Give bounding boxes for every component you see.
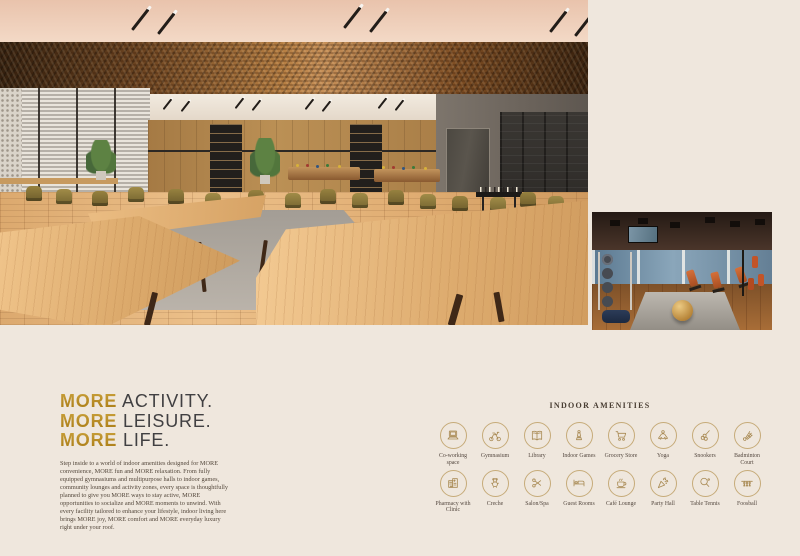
headline-line: MORE LEISURE.	[60, 412, 240, 432]
open-book-icon	[529, 428, 545, 444]
amenity-label: Guest Rooms	[563, 501, 594, 508]
amenity-circle	[650, 422, 677, 449]
amenities-row: Pharmacy with Clinic Creche Salon/Spa Gu…	[432, 470, 768, 515]
chair-shape	[452, 196, 468, 211]
chair-shape	[420, 194, 436, 209]
clinic-building-icon	[445, 475, 461, 491]
headline-rest: LIFE.	[123, 430, 170, 450]
photo-display-cabinet	[210, 124, 242, 192]
chair-shape	[168, 189, 184, 204]
chair-shape	[92, 191, 108, 206]
billiards-icon	[697, 428, 713, 444]
shopping-cart-icon	[613, 428, 629, 444]
intro-section: MORE ACTIVITY. MORE LEISURE. MORE LIFE. …	[60, 392, 240, 532]
headline-rest: LEISURE.	[123, 411, 211, 431]
foosball-icon	[739, 475, 755, 491]
headline: MORE ACTIVITY. MORE LEISURE. MORE LIFE.	[60, 392, 240, 451]
chair-shape	[320, 189, 336, 204]
amenity-co-working-space: Co-working space	[432, 422, 474, 467]
gym-weight-rack	[598, 252, 632, 310]
headline-highlight: MORE	[60, 411, 117, 431]
photo-pool-table	[288, 167, 360, 180]
headline-rest: ACTIVITY.	[122, 391, 213, 411]
amenity-circle	[482, 422, 509, 449]
photo-window-blinds	[0, 88, 150, 192]
chair-shape	[388, 190, 404, 205]
amenity-circle	[650, 470, 677, 497]
amenity-circle	[692, 470, 719, 497]
photo-wall-trim	[148, 150, 438, 152]
amenity-yoga: Yoga	[642, 422, 684, 467]
main-photo	[0, 0, 588, 325]
headline-highlight: MORE	[60, 430, 117, 450]
amenity-label: Co-working space	[433, 453, 473, 467]
gym-ceiling	[592, 212, 772, 250]
amenity-grocery-store: Grocery Store	[600, 422, 642, 467]
gym-duffel-bag	[602, 310, 630, 323]
photo-pool-table	[374, 169, 440, 182]
amenity-circle	[566, 422, 593, 449]
amenity-label: Snookers	[694, 453, 716, 460]
amenity-snookers: Snookers	[684, 422, 726, 467]
amenity-party-hall: Party Hall	[642, 470, 684, 515]
amenity-table-tennis: Table Tennis	[684, 470, 726, 515]
amenities-row: Co-working space Gymnasium Library Indoo…	[432, 422, 768, 467]
amenity-label: Creche	[487, 501, 503, 508]
amenity-indoor-games: Indoor Games	[558, 422, 600, 467]
headline-line: MORE ACTIVITY.	[60, 392, 240, 412]
laptop-icon	[445, 428, 461, 444]
party-popper-icon	[655, 475, 671, 491]
amenities-title: INDOOR AMENITIES	[432, 401, 768, 410]
gym-exercise-ball	[672, 300, 693, 321]
amenity-label: Grocery Store	[605, 453, 638, 460]
amenity-circle	[524, 470, 551, 497]
chair-shape	[128, 187, 144, 202]
amenity-label: Library	[528, 453, 545, 460]
table-tennis-icon	[697, 475, 713, 491]
amenity-circle	[482, 470, 509, 497]
exercise-bike-icon	[487, 428, 503, 444]
photo-plant	[86, 140, 116, 180]
amenity-label: Yoga	[657, 453, 669, 460]
amenities-section: INDOOR AMENITIES Co-working space Gymnas…	[432, 401, 768, 514]
headline-line: MORE LIFE.	[60, 431, 240, 451]
amenity-circle	[440, 422, 467, 449]
amenity-circle	[692, 422, 719, 449]
amenity-creche: Creche	[474, 470, 516, 515]
amenity-label: Salon/Spa	[525, 501, 549, 508]
amenity-label: Badminton Court	[727, 453, 767, 467]
meditation-icon	[655, 428, 671, 444]
chair-shape	[56, 189, 72, 204]
amenity-label: Pharmacy with Clinic	[433, 501, 473, 515]
gym-photo	[592, 212, 772, 330]
photo-ceiling-mosaic	[0, 42, 588, 94]
shuttlecock-icon	[739, 428, 755, 444]
amenity-gymnasium: Gymnasium	[474, 422, 516, 467]
chair-shape	[285, 193, 301, 208]
intro-paragraph: Step inside to a world of indoor ameniti…	[60, 460, 230, 533]
amenity-circle	[440, 470, 467, 497]
amenity-guest-rooms: Guest Rooms	[558, 470, 600, 515]
amenity-circle	[566, 470, 593, 497]
amenity-label: Café Lounge	[606, 501, 636, 508]
chair-shape	[352, 193, 368, 208]
amenity-label: Gymnasium	[481, 453, 509, 460]
bed-icon	[571, 475, 587, 491]
amenity-library: Library	[516, 422, 558, 467]
amenity-label: Indoor Games	[562, 453, 595, 460]
amenity-label: Table Tennis	[690, 501, 720, 508]
amenity-label: Party Hall	[651, 501, 675, 508]
amenity-label: Foosball	[737, 501, 757, 508]
gym-tv-screen	[628, 226, 658, 243]
chess-icon	[571, 428, 587, 444]
amenity-circle	[608, 470, 635, 497]
chair-shape	[520, 192, 536, 207]
headline-highlight: MORE	[60, 391, 117, 411]
amenity-pharmacy-with-clinic: Pharmacy with Clinic	[432, 470, 474, 515]
chair-shape	[26, 186, 42, 201]
brochure-page: MORE ACTIVITY. MORE LEISURE. MORE LIFE. …	[0, 0, 800, 556]
teddy-bear-icon	[487, 475, 503, 491]
photo-ceiling-pink	[0, 0, 588, 42]
amenity-foosball: Foosball	[726, 470, 768, 515]
amenity-circle	[524, 422, 551, 449]
amenity-caf-lounge: Café Lounge	[600, 470, 642, 515]
amenity-salon-spa: Salon/Spa	[516, 470, 558, 515]
photo-lace-screen	[0, 88, 22, 192]
scissors-icon	[529, 475, 545, 491]
gym-machine	[742, 250, 770, 296]
amenity-circle	[734, 422, 761, 449]
photo-plant	[250, 138, 280, 184]
coffee-cup-icon	[613, 475, 629, 491]
amenity-circle	[734, 470, 761, 497]
amenity-badminton-court: Badminton Court	[726, 422, 768, 467]
amenity-circle	[608, 422, 635, 449]
